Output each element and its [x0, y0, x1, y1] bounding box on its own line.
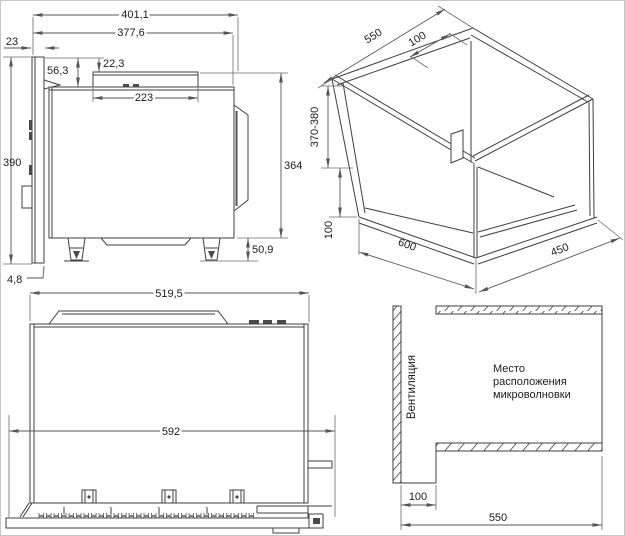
ventilation-label: Вентиляция: [406, 355, 418, 419]
dim-body-height: 364: [284, 160, 302, 172]
dim-door-thickness: 23: [6, 36, 18, 48]
niche-view: 550 100 370-380 100 600 450: [309, 6, 623, 294]
left-wall-hatched: [393, 306, 401, 483]
dim-niche-width: 600: [396, 237, 417, 254]
front-view: 519,5 592: [6, 288, 335, 533]
top-cap-outline: [49, 311, 228, 324]
dim-cap-height: 22,3: [103, 58, 124, 70]
dim-niche-gap-bottom: 100: [323, 221, 335, 239]
dim-vent-gap: 100: [409, 491, 427, 503]
caption-line-2: расположения: [493, 376, 567, 388]
cabinet-niche-outline: [332, 28, 597, 264]
dim-front-body-width: 519,5: [155, 288, 183, 300]
dim-overall-height: 390: [3, 157, 21, 169]
top-cap-profile: [93, 72, 198, 87]
door-handle-profile: [22, 186, 32, 208]
dim-top-inset: 56,3: [47, 65, 68, 77]
dim-cap-width: 223: [135, 92, 153, 104]
middle-panel-hatched: [436, 443, 602, 451]
top-panel-hatched: [436, 306, 602, 314]
dim-niche-depth-top: 550: [362, 27, 384, 47]
bottom-tray-profile: [101, 238, 191, 245]
dim-door-bottom-gap: 4,8: [7, 274, 22, 286]
microwave-place-caption: Место расположения микроволновки: [493, 363, 571, 401]
base-foot: [273, 528, 299, 533]
base-plate: [6, 518, 323, 528]
dim-niche-gap-top: 100: [406, 30, 428, 50]
dim-overall-width: 401,1: [121, 9, 149, 21]
caption-line-3: микроволновки: [493, 389, 571, 401]
side-view: 401,1 377,6 23 56,3 22,3 223 390 364 50,…: [3, 9, 302, 286]
microwave-body-front: [30, 324, 308, 503]
installation-drawing-page: 401,1 377,6 23 56,3 22,3 223 390 364 50,…: [0, 0, 625, 536]
caption-line-1: Место: [493, 363, 525, 375]
microwave-body-side: [49, 87, 234, 238]
dim-placement-width: 550: [489, 512, 507, 524]
control-marks: [249, 320, 259, 324]
dim-front-frame-width: 592: [162, 426, 180, 438]
dim-feet-height: 50,9: [252, 244, 273, 256]
placement-view: Вентиляция Место расположения микроволно…: [393, 306, 602, 530]
dim-niche-height-range: 370-380: [309, 107, 321, 147]
dim-body-width: 377,6: [117, 27, 145, 39]
technical-drawing: 401,1 377,6 23 56,3 22,3 223 390 364 50,…: [1, 1, 625, 536]
side-latch: [308, 461, 332, 468]
dim-niche-depth-bottom: 450: [549, 241, 570, 259]
door-frame-profile: [32, 57, 44, 263]
